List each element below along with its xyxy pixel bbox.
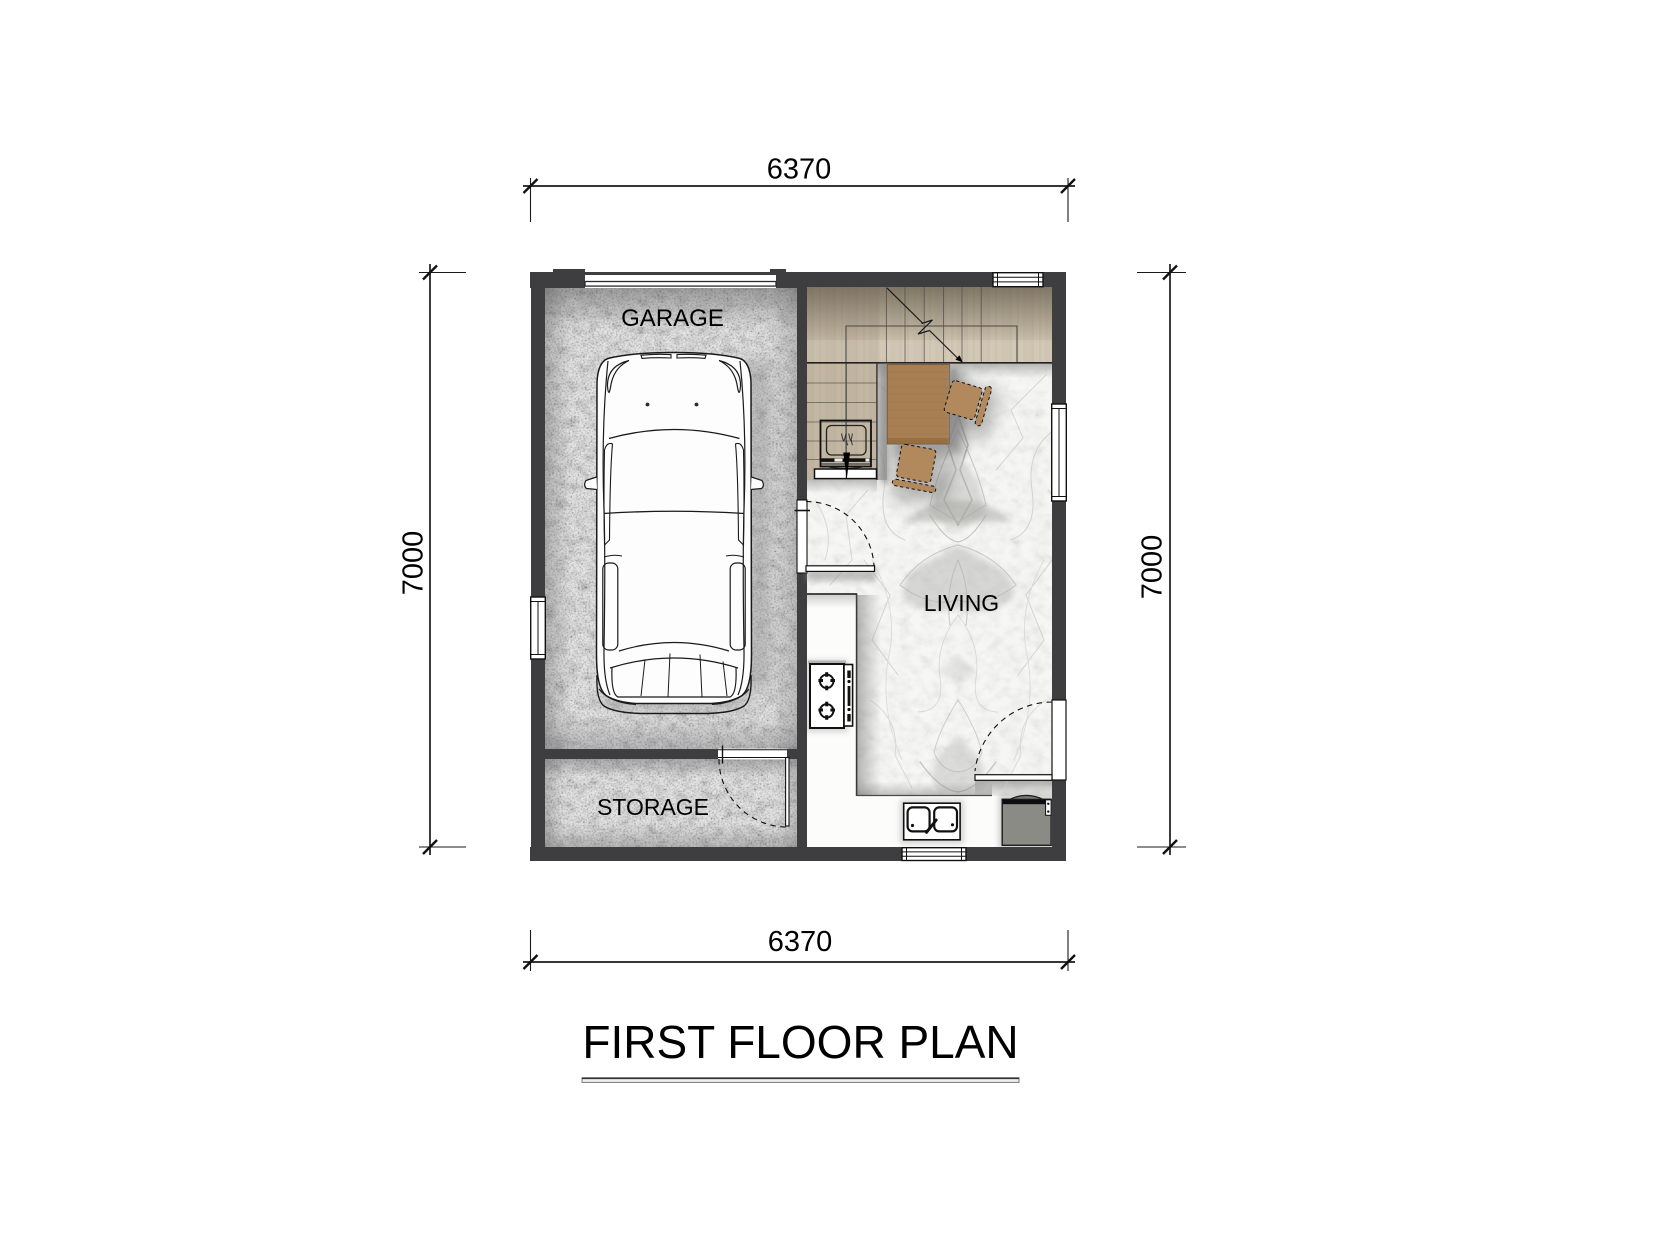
svg-text:FIRST FLOOR PLAN: FIRST FLOOR PLAN: [582, 1016, 1018, 1068]
svg-text:7000: 7000: [398, 531, 430, 596]
svg-text:LIVING: LIVING: [924, 590, 999, 616]
svg-text:GARAGE: GARAGE: [621, 305, 724, 332]
svg-text:STORAGE: STORAGE: [597, 794, 709, 820]
svg-text:7000: 7000: [1137, 535, 1169, 600]
svg-text:6370: 6370: [767, 154, 832, 186]
svg-text:6370: 6370: [768, 926, 833, 958]
